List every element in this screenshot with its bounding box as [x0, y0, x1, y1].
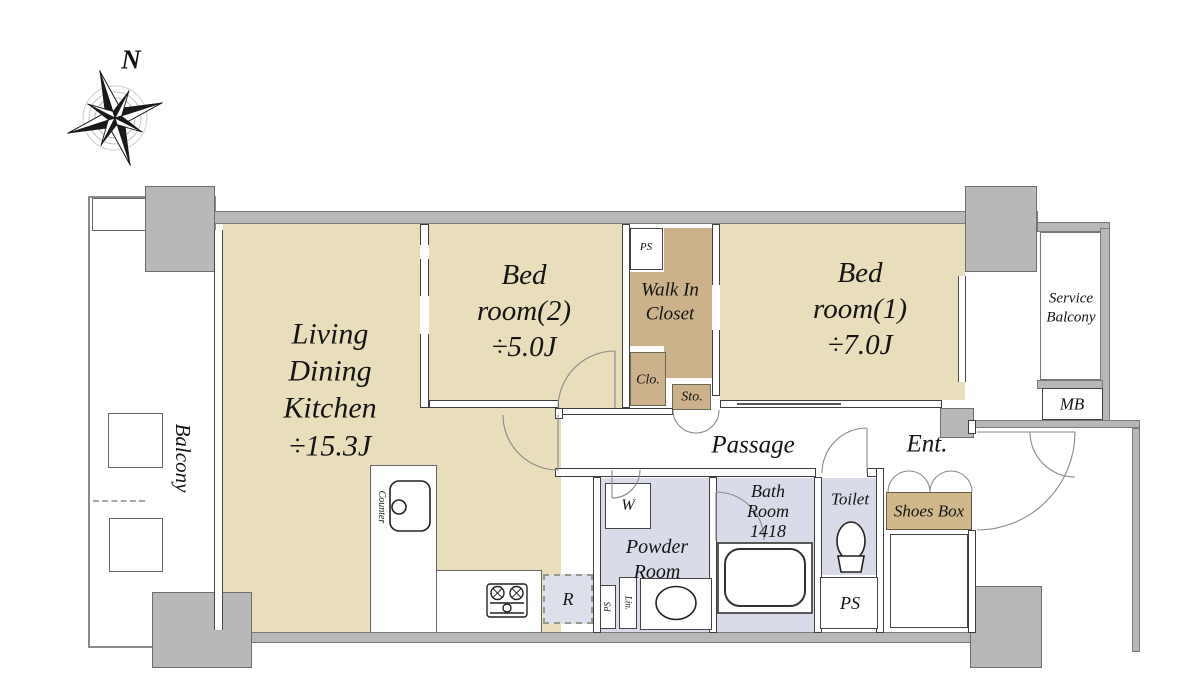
- front-door-arc: [977, 432, 1075, 530]
- column-top-right: [965, 186, 1037, 272]
- ldk-label: Living Dining Kitchen ÷15.3J: [283, 316, 376, 465]
- ps-upper-label: PS: [640, 241, 652, 255]
- linen-label: Lin.: [622, 596, 633, 610]
- ps-lower-label: PS: [840, 592, 860, 614]
- wall-ent-right-stub: [968, 420, 976, 434]
- washer-label: W: [621, 496, 634, 516]
- wic-door-gap: [712, 285, 720, 330]
- kitchen-counter-bottom: [436, 570, 542, 633]
- top-wall: [210, 211, 1038, 224]
- balcony-planter: [92, 198, 148, 231]
- corridor-right-wall: [1132, 428, 1140, 652]
- front-door-arc-2: [1030, 432, 1075, 477]
- bedroom1-service-window: [958, 276, 966, 382]
- storage-label: Sto.: [681, 388, 702, 405]
- column-bottom-left: [152, 592, 252, 668]
- toilet-door-arc: [822, 428, 867, 473]
- powder-door-gap: [610, 469, 640, 476]
- wall-ent-right-low: [968, 530, 976, 633]
- refrigerator-label: R: [563, 588, 574, 610]
- shoes-box-folding-door: [888, 471, 972, 492]
- closet-label: Clo.: [636, 371, 660, 388]
- compass-north-label: N: [121, 43, 141, 76]
- entrance-label: Ent.: [907, 429, 948, 460]
- balcony-label: Balcony: [170, 424, 196, 493]
- meter-box-label: MB: [1060, 393, 1085, 414]
- ldk-balcony-window: [214, 230, 223, 630]
- entrance-top-wall: [968, 420, 1140, 428]
- wall-bedroom2-wic: [622, 224, 630, 408]
- bedroom2-door-gap-1: [420, 245, 429, 259]
- passage-label: Passage: [711, 430, 794, 461]
- wall-ldk-passage-stub: [555, 408, 563, 419]
- shoes-box-label: Shoes Box: [894, 500, 964, 521]
- column-top-left: [145, 186, 215, 272]
- wall-passage-top: [561, 408, 673, 415]
- wall-wet-top: [555, 468, 816, 477]
- entrance-floor: [890, 534, 968, 628]
- bedroom2-door-gap-2: [420, 296, 429, 334]
- balcony-unit-2: [109, 518, 163, 572]
- bottom-wall: [216, 632, 976, 643]
- counter-label: Counter: [375, 491, 387, 524]
- walk-in-closet-label: Walk In Closet: [641, 278, 699, 325]
- bedroom1-label: Bed room(1) ÷7.0J: [813, 256, 907, 364]
- toilet-label: Toilet: [831, 488, 869, 509]
- service-balcony-label: Service Balcony: [1046, 289, 1095, 326]
- compass-rose-icon: [45, 40, 195, 190]
- wall-bedroom2-bottom: [429, 400, 559, 408]
- powder-room-label: Powder Room: [626, 535, 688, 585]
- balcony-divider: [93, 500, 145, 502]
- balcony-unit-1: [108, 413, 163, 468]
- vanity-box: [640, 578, 712, 630]
- ps-narrow-label: PS: [602, 602, 613, 612]
- bedroom1-sliding-door: [737, 403, 841, 405]
- bedroom2-label: Bed room(2) ÷5.0J: [477, 258, 571, 366]
- bathroom-label: Bath Room 1418: [747, 481, 789, 541]
- floor-plan: N Balcony: [0, 0, 1200, 699]
- column-bottom-right: [970, 586, 1042, 668]
